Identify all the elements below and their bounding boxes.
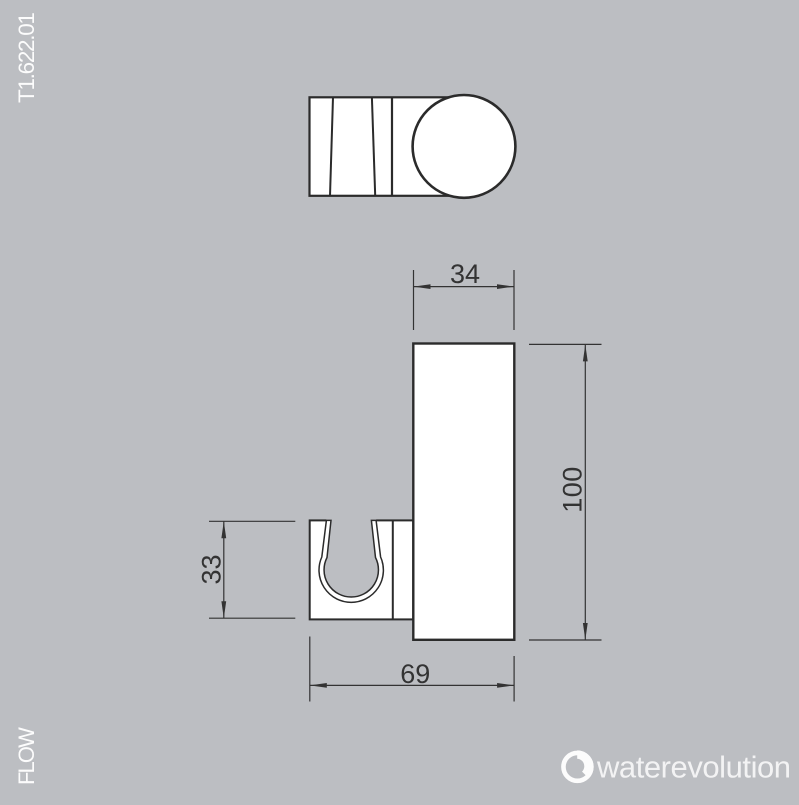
svg-text:T1.622.01: T1.622.01 [14, 13, 39, 103]
svg-text:waterevolution: waterevolution [596, 750, 791, 785]
svg-text:34: 34 [450, 259, 480, 289]
svg-text:FLOW: FLOW [14, 727, 39, 785]
svg-text:100: 100 [558, 466, 588, 513]
svg-text:69: 69 [400, 659, 430, 689]
svg-text:33: 33 [197, 554, 227, 584]
